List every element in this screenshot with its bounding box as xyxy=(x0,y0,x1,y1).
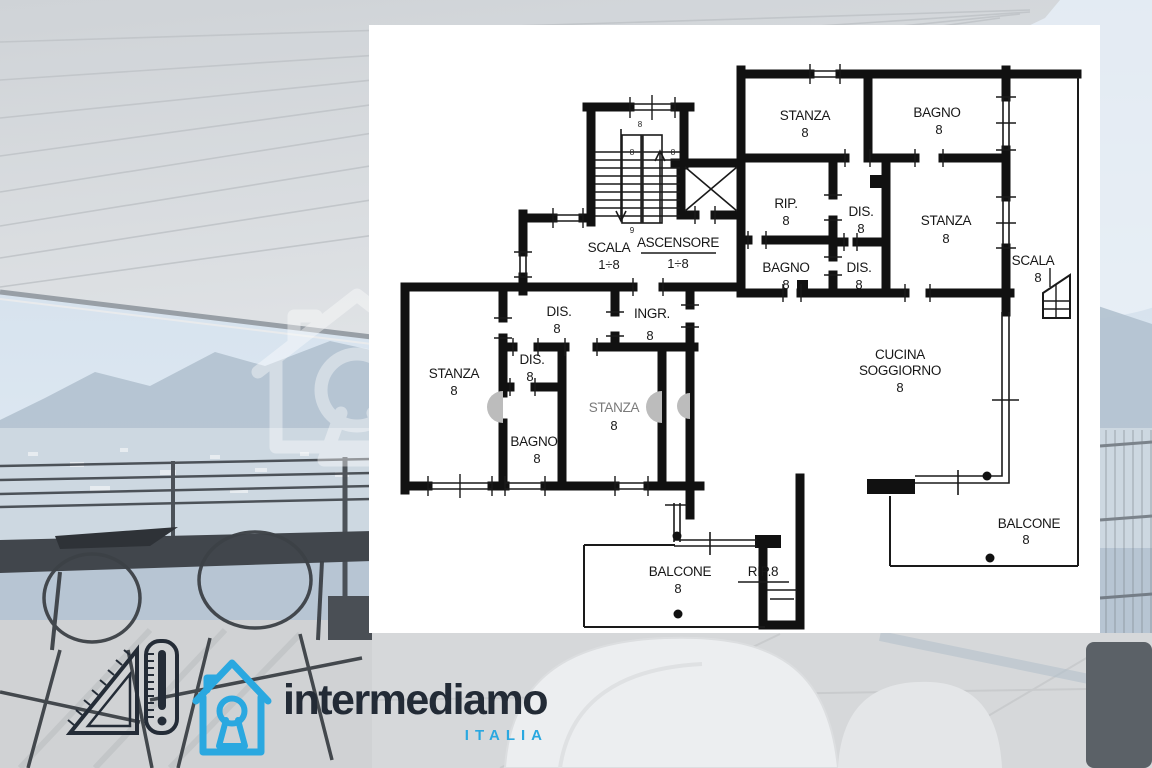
pencil-ruler-icon xyxy=(146,641,177,733)
brand-wordmark: intermediamo xyxy=(283,676,547,724)
brand-logo: intermediamo ITALIA xyxy=(0,0,1152,768)
brand-country: ITALIA xyxy=(465,727,548,744)
listing-image: 8 8 8 9 STANZA 8 BAGNO 8 RIP. 8 DIS. 8 S… xyxy=(0,0,1152,768)
house-keyhole-icon xyxy=(196,663,268,752)
set-square-icon xyxy=(68,650,137,733)
